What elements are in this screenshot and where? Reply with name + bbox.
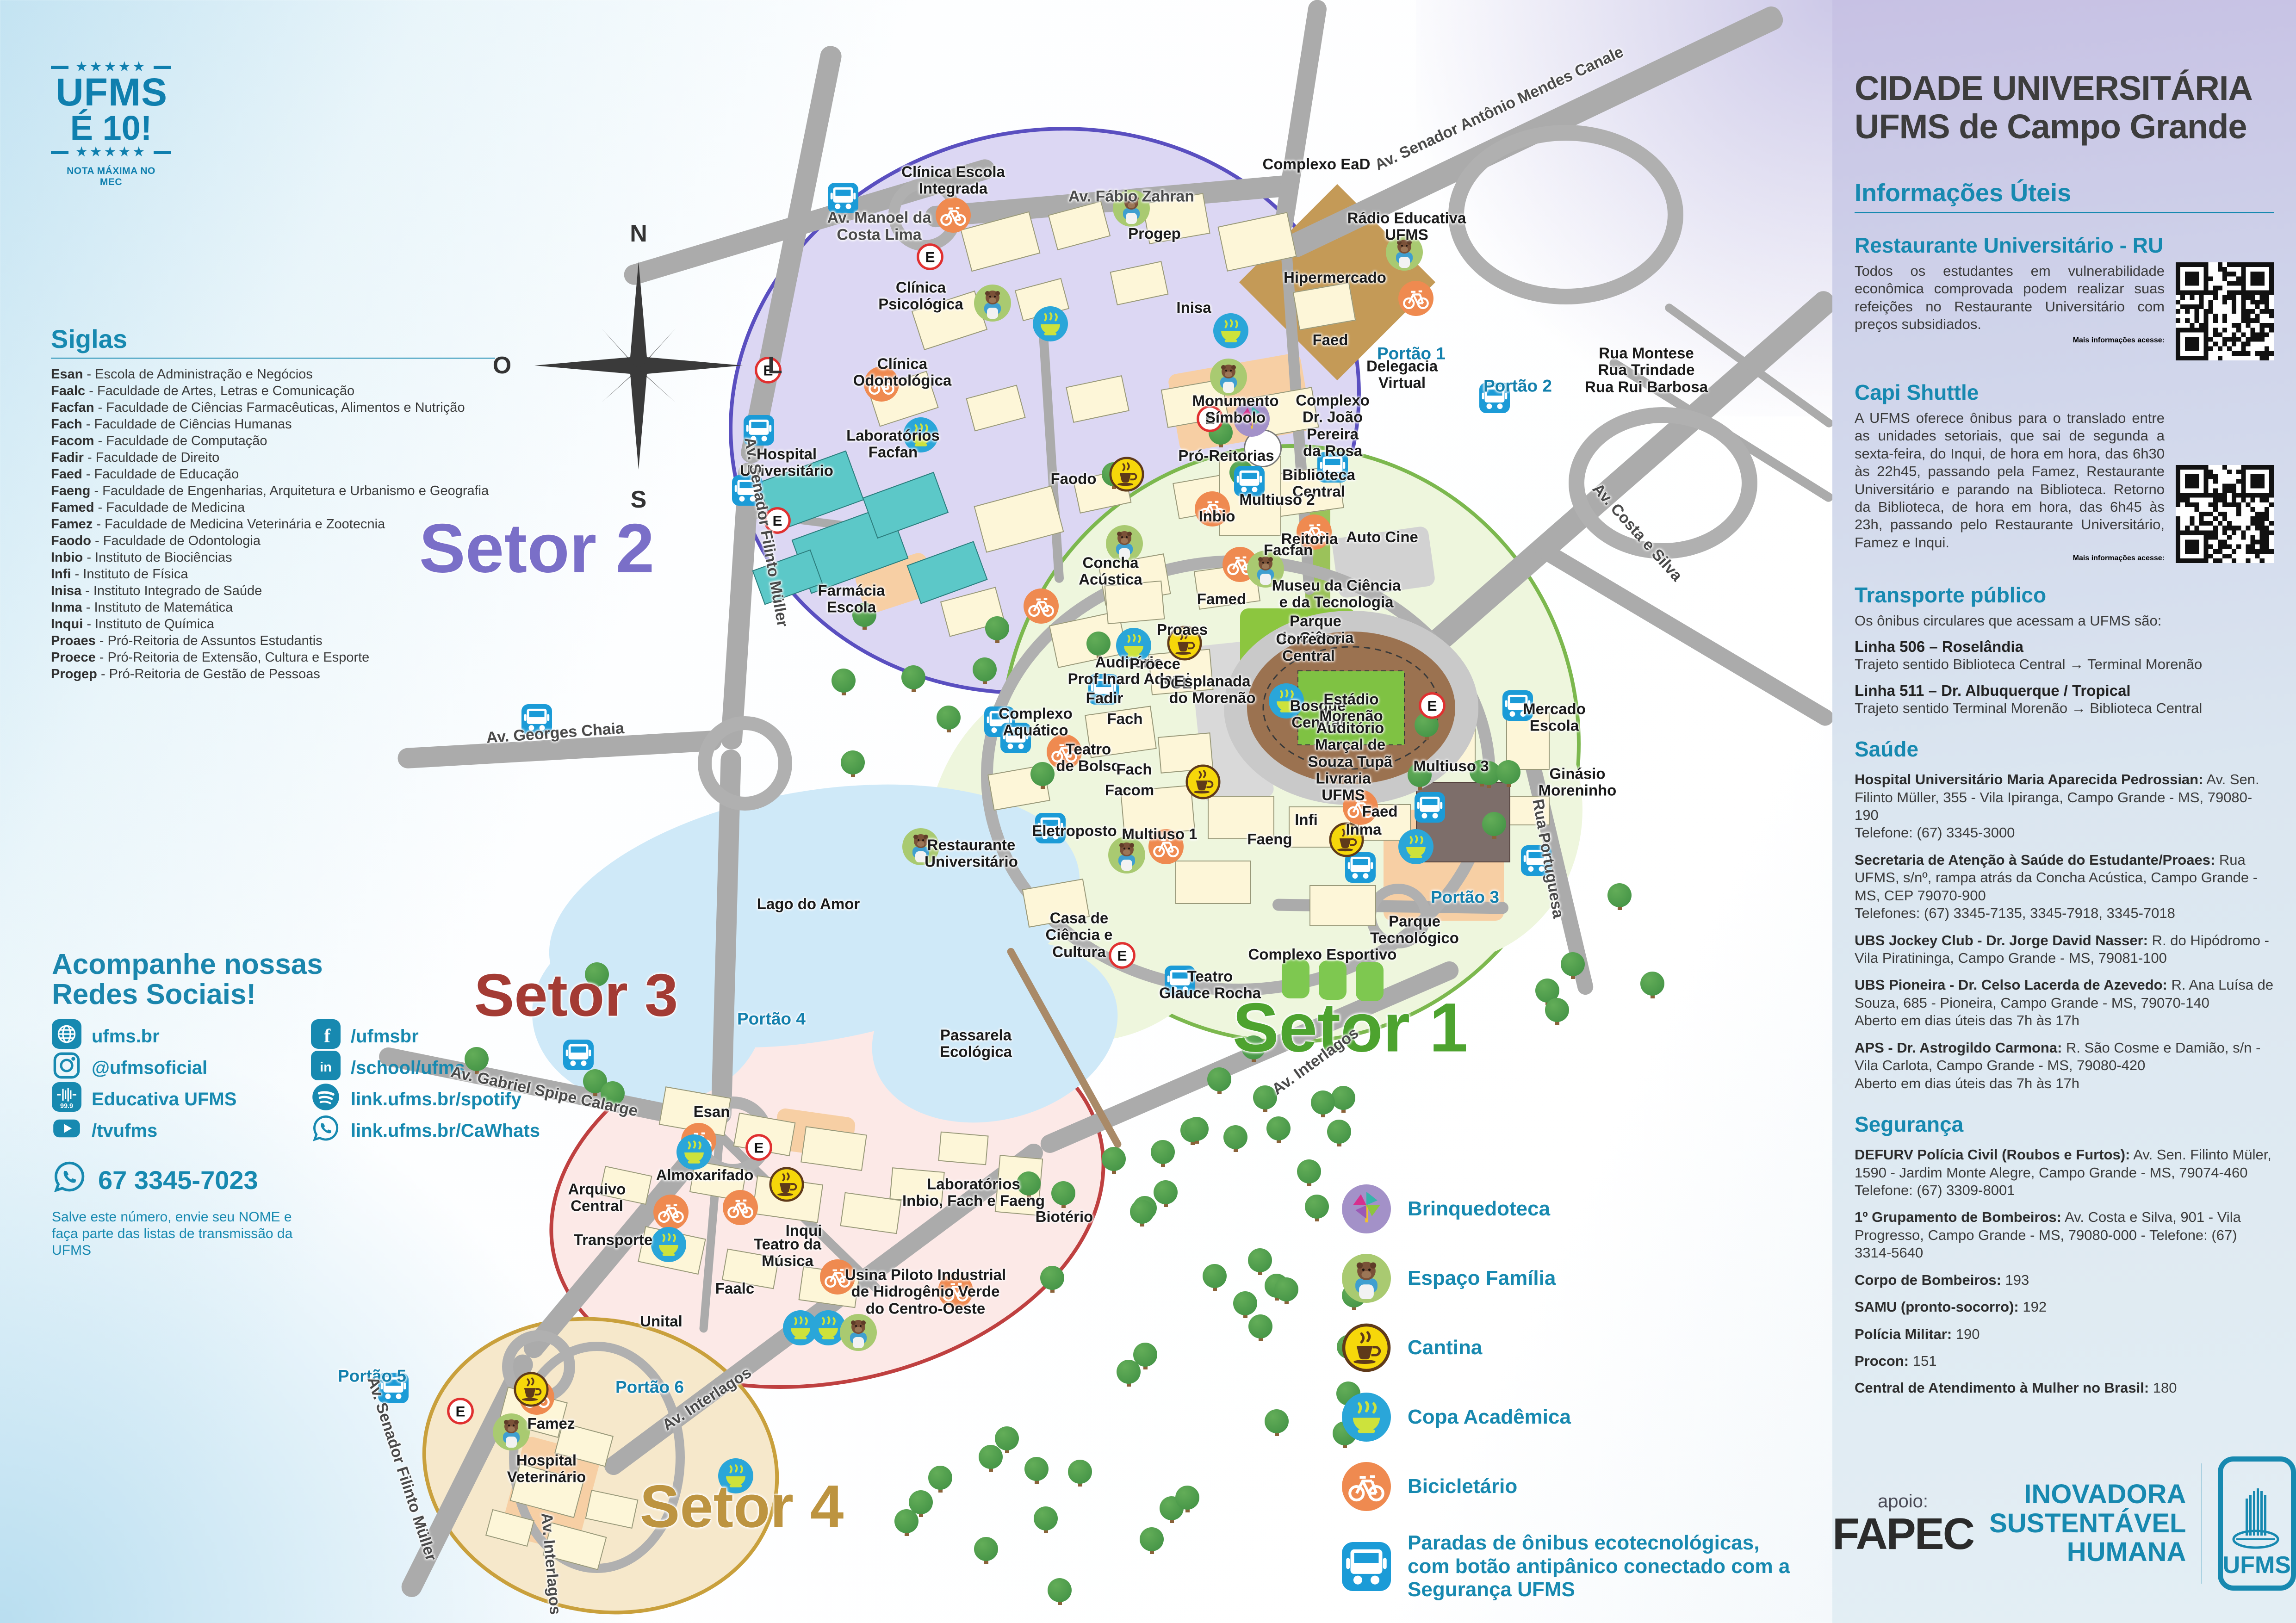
map-label: EstádioMorenão: [1319, 691, 1383, 725]
map-label: Almoxarifado: [656, 1167, 754, 1183]
compass-s: S: [631, 486, 647, 514]
map-label: ParqueTecnológico: [1370, 913, 1459, 947]
social-label: /tvufms: [92, 1121, 157, 1141]
info-item: APS - Dr. Astrogildo Carmona: R. São Cos…: [1855, 1039, 2274, 1092]
info-item: UBS Jockey Club - Dr. Jorge David Nasser…: [1855, 932, 2274, 967]
info-item: Procon: 151: [1855, 1352, 2274, 1370]
map-label: Rádio EducativaUFMS: [1347, 210, 1466, 244]
ru-text: Todos os estudantes em vulnerabilidade e…: [1855, 262, 2165, 334]
map-label: Inma: [1346, 821, 1381, 838]
support-footer: apoio: FAPEC INOVADORA SUSTENTÁVEL HUMAN…: [1832, 1456, 2296, 1591]
map-label: Fach: [1107, 711, 1142, 727]
bus-line-name: Linha 511 – Dr. Albuquerque / Tropical: [1855, 682, 2274, 700]
map-label: Unital: [640, 1313, 683, 1330]
svg-text:in: in: [320, 1060, 332, 1075]
legend-label: Cantina: [1408, 1336, 1482, 1360]
info-item: SAMU (pronto-socorro): 192: [1855, 1298, 2274, 1316]
bike-icon: [1024, 588, 1059, 624]
map-label: ClínicaPsicológica: [878, 279, 963, 313]
ufms-tower-icon: [2229, 1482, 2284, 1551]
map-label: Proece: [1129, 656, 1180, 672]
info-panel: CIDADE UNIVERSITÁRIA UFMS de Campo Grand…: [1832, 0, 2296, 1623]
ru-cta: Mais informações acesse:: [1855, 336, 2165, 345]
map-label: Rua MonteseRua TrindadeRua Rui Barbosa: [1585, 345, 1708, 396]
map-label: ClínicaOdontológica: [853, 356, 952, 390]
map-label: Casa deCiência eCultura: [1046, 910, 1113, 960]
bike-icon: [653, 1195, 689, 1230]
seguranca-title: Segurança: [1855, 1112, 2274, 1137]
map-label: Av. Manoel daCosta Lima: [827, 210, 931, 244]
info-item: UBS Pioneira - Dr. Celso Lacerda de Azev…: [1855, 976, 2274, 1029]
social-label: link.ufms.br/spotify: [351, 1089, 521, 1110]
compass-o: O: [493, 352, 511, 379]
highway-loop: [1448, 125, 1683, 304]
map-label: AuditórioMarçal deSouza Tupã: [1308, 720, 1393, 770]
fapec-logo: FAPEC: [1832, 1512, 1973, 1556]
legend-item-coffee: Cantina: [1342, 1323, 1795, 1372]
coffee-icon: [769, 1167, 804, 1202]
roundabout: [698, 716, 792, 811]
map-label: Esplanadado Morenão: [1169, 673, 1256, 707]
map-label: Clínica EscolaIntegrada: [901, 164, 1005, 198]
capi-title: Capi Shuttle: [1855, 380, 2274, 405]
map-legend: BrinquedotecaEspaço FamíliaCantinaCopa A…: [1342, 1184, 1795, 1622]
map-label: Multiuso 3: [1413, 758, 1489, 774]
map-label: LivrariaUFMS: [1316, 770, 1371, 804]
siglas-section: Siglas Esan - Escola de Administração e …: [51, 324, 518, 682]
map-label: Inbio: [1199, 508, 1235, 525]
map-label: MonumentoSímbolo: [1192, 393, 1279, 427]
bus-icon: [1342, 1542, 1391, 1591]
svg-text:E: E: [754, 1139, 763, 1156]
siglas-title: Siglas: [51, 324, 495, 359]
saude-title: Saúde: [1855, 737, 2274, 762]
bus-stop-icon: [1415, 792, 1445, 823]
epark-icon: E: [745, 1134, 773, 1161]
bus-lines: Linha 506 – RoselândiaTrajeto sentido Bi…: [1855, 638, 2274, 717]
panel-title: CIDADE UNIVERSITÁRIA UFMS de Campo Grand…: [1855, 69, 2274, 146]
bike-icon: [1398, 281, 1433, 316]
capy-icon: [840, 1314, 877, 1351]
svg-text:f: f: [324, 1025, 331, 1047]
globe-icon: [52, 1019, 81, 1053]
sigla-item: Inqui - Instituto de Química: [51, 616, 518, 632]
map-label: Faeng: [1247, 831, 1292, 848]
map-label: Famez: [527, 1415, 575, 1432]
map-label: Pró-Reitorias: [1178, 447, 1274, 464]
social-note: Salve este número, envie seu NOME e faça…: [52, 1209, 311, 1259]
facebook-icon: f: [311, 1019, 341, 1053]
bus-line: Linha 511 – Dr. Albuquerque / TropicalTr…: [1855, 682, 2274, 717]
map-label: Multiuso 2: [1239, 491, 1315, 508]
sigla-item: Proaes - Pró-Reitoria de Assuntos Estuda…: [51, 632, 518, 649]
transporte-intro: Os ônibus circulares que acessam a UFMS …: [1855, 612, 2274, 630]
map-label: Hipermercado: [1284, 269, 1386, 286]
map-label: Fadir: [1086, 690, 1123, 706]
map-label: ComplexoDr. JoãoPereirada Rosa: [1296, 392, 1370, 459]
info-item: Central de Atendimento à Mulher no Brasi…: [1855, 1379, 2274, 1397]
map-label: Portão 1: [1377, 345, 1446, 364]
map-label: Museu da Ciênciae da Tecnologia: [1272, 577, 1401, 611]
legend-label: Copa Acadêmica: [1408, 1406, 1571, 1429]
stars-top: ★★★★★: [56, 60, 167, 74]
map-label: Portão 4: [737, 1010, 806, 1029]
bus-stop-icon: [563, 1040, 594, 1070]
ru-title: Restaurante Universitário - RU: [1855, 233, 2274, 258]
bowl-icon: [1213, 313, 1248, 348]
bus-line-route: Trajeto sentido Biblioteca Central → Ter…: [1855, 656, 2274, 673]
svg-text:99.9: 99.9: [60, 1103, 73, 1110]
bike-icon: [936, 198, 971, 233]
coffee-icon: [1342, 1323, 1391, 1372]
building: [1175, 861, 1251, 904]
map-label: FarmáciaEscola: [818, 582, 885, 616]
map-label: LaboratóriosInbio, Fach e Faeng: [902, 1176, 1045, 1210]
sigla-item: Facfan - Faculdade de Ciências Farmacêut…: [51, 399, 518, 416]
compass-star-icon: [518, 245, 759, 486]
ufms-logo: ★★★★★ UFMS É 10! ★★★★★ NOTA MÁXIMA NO ME…: [56, 60, 167, 188]
map-label: CorredorCentral: [1276, 631, 1341, 665]
ru-qr-code: [2176, 262, 2274, 360]
map-label: Faalc: [715, 1280, 754, 1297]
ufms-logo-text: UFMS: [2223, 1551, 2291, 1579]
map-label: Teatrode Bolso: [1056, 741, 1120, 775]
epark-icon: E: [916, 243, 944, 271]
bowl-icon: [1342, 1393, 1391, 1442]
legend-label: Brinquedoteca: [1408, 1197, 1550, 1221]
road: [1273, 0, 1328, 233]
sigla-item: Fach - Faculdade de Ciências Humanas: [51, 416, 518, 433]
legend-item-bike: Bicicletário: [1342, 1462, 1795, 1511]
map-label: Av. Fábio Zahran: [1068, 188, 1194, 205]
sigla-item: Faalc - Faculdade de Artes, Letras e Com…: [51, 383, 518, 399]
coffee-icon: [514, 1372, 549, 1407]
whatsapp-phone-row[interactable]: 67 3345-7023: [52, 1159, 598, 1201]
map-label: Fach: [1116, 761, 1152, 778]
svg-text:E: E: [925, 248, 935, 265]
map-label: Infi: [1295, 811, 1317, 828]
map-label: Setor 2: [419, 510, 655, 587]
info-item: Corpo de Bombeiros: 193: [1855, 1271, 2274, 1289]
epark-icon: E: [1418, 692, 1446, 719]
sigla-item: Inma - Instituto de Matemática: [51, 599, 518, 616]
info-item: DEFURV Polícia Civil (Roubos e Furtos): …: [1855, 1146, 2274, 1199]
spotify-icon: [311, 1082, 341, 1116]
bowl-icon: [1398, 829, 1433, 864]
transporte-section: Transporte público Os ônibus circulares …: [1855, 582, 2274, 717]
map-label: Proaes: [1157, 621, 1208, 638]
social-label: ufms.br: [92, 1026, 160, 1047]
social-label: @ufmsoficial: [92, 1058, 207, 1078]
sigla-item: Faeng - Faculdade de Engenharias, Arquit…: [51, 483, 518, 499]
map-label: Transporte: [574, 1232, 653, 1248]
building: [1309, 885, 1376, 926]
map-label: Usina Piloto Industrialde Hidrogênio Ver…: [845, 1267, 1006, 1317]
social-label: /ufmsbr: [351, 1026, 419, 1047]
bus-line: Linha 506 – RoselândiaTrajeto sentido Bi…: [1855, 638, 2274, 673]
legend-label: Bicicletário: [1408, 1475, 1517, 1499]
social-label: link.ufms.br/CaWhats: [351, 1121, 540, 1141]
building: [938, 1132, 988, 1165]
bowl-icon: [676, 1134, 712, 1170]
map-label: Portão 3: [1431, 888, 1499, 907]
pinwheel-icon: [1342, 1184, 1391, 1233]
map-label: Faed: [1362, 803, 1397, 820]
logo-line1: UFMS: [56, 74, 167, 111]
info-item: Secretaria de Atenção à Saúde do Estudan…: [1855, 851, 2274, 923]
ru-section: Restaurante Universitário - RU Todos os …: [1855, 233, 2274, 360]
stars-bottom: ★★★★★: [56, 145, 167, 159]
coffee-icon: [1109, 457, 1144, 492]
whatsapp-icon: [52, 1159, 87, 1201]
bowl-icon: [651, 1227, 686, 1262]
saude-list: Hospital Universitário Maria Aparecida P…: [1855, 771, 2274, 1092]
legend-item-capy: Espaço Família: [1342, 1254, 1795, 1303]
seguranca-list: DEFURV Polícia Civil (Roubos e Furtos): …: [1855, 1146, 2274, 1397]
map-label: Facfan: [1264, 542, 1313, 558]
map-label: Esan: [694, 1103, 730, 1120]
epark-icon: E: [447, 1397, 474, 1425]
whatsapp-icon: [311, 1114, 341, 1148]
map-label: Portão 6: [615, 1378, 684, 1397]
capi-shuttle-section: Capi Shuttle A UFMS oferece ônibus para …: [1855, 380, 2274, 563]
info-item: 1º Grupamento de Bombeiros: Av. Costa e …: [1855, 1208, 2274, 1262]
social-link-globe[interactable]: ufms.br: [52, 1019, 311, 1053]
social-link-radio[interactable]: 99.9Educativa UFMS: [52, 1082, 311, 1116]
map-label: Progep: [1128, 225, 1181, 242]
instagram-icon: [52, 1051, 81, 1085]
map-label: Multiuso 1: [1122, 826, 1197, 842]
social-label: /school/ufms: [351, 1058, 465, 1078]
bike-icon: [1342, 1462, 1391, 1511]
map-label: ComplexoAquático: [999, 706, 1073, 739]
legend-label: Paradas de ônibus ecotecnológicas, com b…: [1408, 1531, 1795, 1602]
sigla-item: Esan - Escola de Administração e Negócio…: [51, 366, 518, 383]
map-label: Eletroposto: [1032, 823, 1117, 839]
apoio-label: apoio:: [1832, 1491, 1973, 1512]
social-label: Educativa UFMS: [92, 1089, 236, 1110]
linkedin-icon: in: [311, 1051, 341, 1085]
bike-icon: [723, 1190, 758, 1225]
saude-section: Saúde Hospital Universitário Maria Apare…: [1855, 737, 2274, 1092]
map-label: Teatro daMúsica: [754, 1236, 821, 1270]
map-label: Complexo Esportivo: [1248, 946, 1397, 963]
map-label: Portão 2: [1483, 377, 1552, 396]
social-link-whatsapp[interactable]: link.ufms.br/CaWhats: [311, 1114, 589, 1148]
seguranca-section: Segurança DEFURV Polícia Civil (Roubos e…: [1855, 1112, 2274, 1397]
transporte-title: Transporte público: [1855, 582, 2274, 607]
legend-item-bus: Paradas de ônibus ecotecnológicas, com b…: [1342, 1531, 1795, 1602]
map-label: Famed: [1197, 591, 1246, 607]
legend-item-pinwheel: Brinquedoteca: [1342, 1184, 1795, 1233]
coffee-icon: [1185, 764, 1221, 799]
sigla-item: Facom - Faculdade de Computação: [51, 433, 518, 449]
social-link-instagram[interactable]: @ufmsoficial: [52, 1051, 311, 1085]
map-label: HospitalVeterinário: [507, 1452, 586, 1486]
capy-icon: [493, 1413, 530, 1450]
map-label: Auto Cine: [1346, 529, 1418, 545]
map-label: ArquivoCentral: [568, 1181, 626, 1215]
sigla-item: Progep - Pró-Reitoria de Gestão de Pesso…: [51, 666, 518, 682]
highway-loop: [1569, 407, 1757, 559]
logo-note: NOTA MÁXIMA NO MEC: [56, 166, 167, 188]
map-label: Setor 4: [640, 1474, 844, 1540]
capy-icon: [1210, 359, 1247, 396]
capi-cta: Mais informações acesse:: [1855, 554, 2165, 563]
map-label: PassarelaEcológica: [940, 1027, 1012, 1061]
map-label: Facom: [1105, 782, 1154, 799]
map-label: LaboratóriosFacfan: [846, 427, 940, 461]
compass-l: L: [768, 352, 782, 379]
capi-text: A UFMS oferece ônibus para o translado e…: [1855, 409, 2165, 552]
slogan: INOVADORA SUSTENTÁVEL HUMANA: [1989, 1480, 2186, 1567]
map-label: Biotério: [1036, 1208, 1093, 1225]
ufms-brand-logo: UFMS: [2218, 1456, 2296, 1591]
map-label: Lago do Amor: [757, 896, 860, 912]
sigla-item: Faed - Faculdade de Educação: [51, 466, 518, 483]
sigla-item: Proece - Pró-Reitoria de Extensão, Cultu…: [51, 649, 518, 666]
svg-text:E: E: [455, 1403, 465, 1419]
capy-icon: [974, 285, 1011, 322]
whatsapp-phone: 67 3345-7023: [98, 1165, 258, 1195]
youtube-icon: [52, 1114, 81, 1148]
social-link-youtube[interactable]: /tvufms: [52, 1114, 311, 1148]
legend-label: Espaço Família: [1408, 1267, 1556, 1290]
bowl-icon: [1033, 306, 1068, 341]
info-item: Hospital Universitário Maria Aparecida P…: [1855, 771, 2274, 842]
legend-item-bowl: Copa Acadêmica: [1342, 1393, 1795, 1442]
map-label: Inisa: [1176, 299, 1211, 316]
map-label: GinásioMoreninho: [1539, 766, 1617, 799]
logo-line2: É 10!: [56, 111, 167, 145]
map-label: Faodo: [1051, 471, 1097, 487]
map-label: MercadoEscola: [1523, 701, 1586, 735]
map-label: Setor 3: [474, 962, 678, 1028]
informacoes-uteis-title: Informações Úteis: [1855, 179, 2274, 213]
bus-line-name: Linha 506 – Roselândia: [1855, 638, 2274, 656]
capy-icon: [1342, 1254, 1391, 1303]
sigla-item: Fadir - Faculdade de Direito: [51, 449, 518, 466]
map-label: RestauranteUniversitário: [925, 837, 1018, 871]
map-label: Faed: [1312, 332, 1348, 348]
svg-text:E: E: [1117, 947, 1127, 964]
svg-text:E: E: [1427, 697, 1437, 714]
compass-n: N: [630, 220, 647, 248]
radio-icon: 99.9: [52, 1082, 81, 1116]
info-item: Polícia Militar: 190: [1855, 1326, 2274, 1343]
map-label: Complexo EaD: [1263, 156, 1371, 173]
map-label: ConchaAcústica: [1079, 555, 1142, 588]
capi-qr-code: [2176, 465, 2274, 563]
bus-line-route: Trajeto sentido Terminal Morenão → Bibli…: [1855, 700, 2274, 717]
